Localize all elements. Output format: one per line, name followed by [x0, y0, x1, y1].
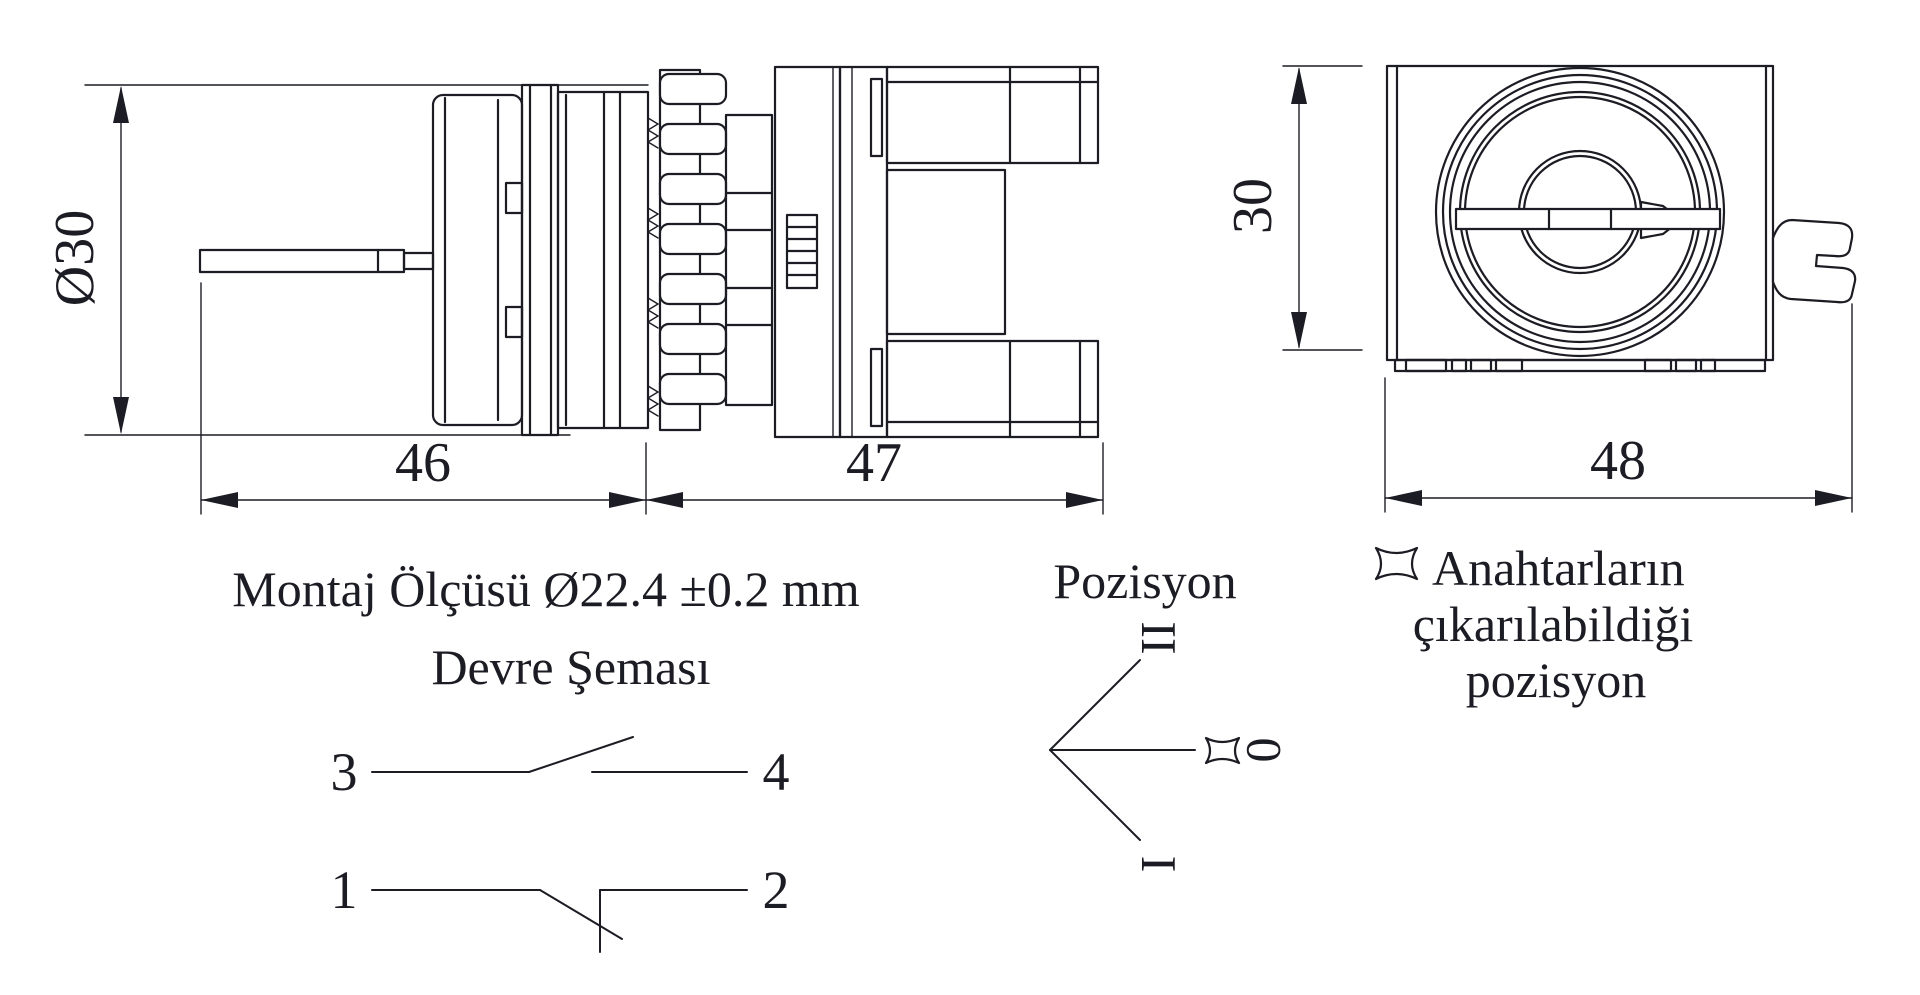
key-note-line3: pozisyon — [1466, 652, 1647, 708]
contact-block — [775, 67, 1098, 437]
arrow-right-icon — [646, 492, 683, 508]
arrow-up-icon — [1291, 67, 1307, 104]
dim-48-label: 48 — [1590, 430, 1646, 492]
key-note-line2: çıkarılabildiği — [1413, 596, 1693, 652]
terminal-3-label: 3 — [331, 742, 358, 802]
key-switch-technical-drawing: Ø30 46 47 — [0, 0, 1920, 995]
terminal-top — [871, 67, 1098, 163]
knurled-mounting-ring — [660, 70, 726, 430]
arrow-left-icon — [1066, 492, 1103, 508]
dim-30-label: 30 — [1222, 178, 1284, 234]
arrow-left-icon — [1385, 490, 1422, 506]
terminal-4-label: 4 — [763, 742, 790, 802]
key-symbol-icon — [1376, 548, 1417, 579]
position-title: Pozisyon — [1053, 553, 1236, 609]
key-cylinder — [1456, 151, 1720, 273]
lock-head-housing — [433, 95, 522, 425]
side-view — [200, 67, 1098, 437]
circuit-title: Devre Şeması — [431, 639, 710, 695]
key-note-line1: Anahtarların — [1432, 540, 1685, 596]
arrow-down-icon — [1291, 312, 1307, 349]
position-0-label: 0 — [1234, 738, 1290, 763]
terminal-2-label: 2 — [763, 860, 790, 920]
key-release-tab — [1773, 220, 1855, 302]
technical-drawing-page: Ø30 46 47 — [0, 0, 1920, 995]
dimension-46: 46 — [201, 283, 646, 514]
key-removal-note: Anahtarların çıkarılabildiği pozisyon — [1376, 540, 1693, 708]
arrow-right-icon — [1815, 490, 1852, 506]
dimension-47: 47 — [646, 432, 1103, 514]
circuit-diagram: Devre Şeması 3 4 1 2 — [331, 639, 790, 952]
bezel-flange — [522, 85, 558, 435]
mounting-feet — [1395, 360, 1765, 371]
mounting-dimension-note: Montaj Ölçüsü Ø22.4 ±0.2 mm — [232, 561, 860, 617]
arrow-right-icon — [609, 492, 646, 508]
arrow-up-icon — [113, 86, 129, 123]
arrow-left-icon — [201, 492, 238, 508]
dim-diameter-label: Ø30 — [44, 210, 106, 306]
position-I-label: I — [1129, 856, 1185, 873]
terminal-bottom — [871, 341, 1098, 437]
key-slot — [1456, 209, 1720, 229]
dimension-height-30: 30 — [1222, 66, 1362, 350]
dim-47-label: 47 — [846, 432, 902, 494]
terminal-1-label: 1 — [331, 860, 358, 920]
dim-46-label: 46 — [395, 432, 451, 494]
adapter-plate — [726, 115, 772, 405]
arrow-down-icon — [113, 397, 129, 434]
front-view — [1387, 66, 1855, 371]
collar-section — [558, 92, 658, 428]
contact-nc-1-2: 1 2 — [331, 860, 790, 952]
contact-no-3-4: 3 4 — [331, 737, 790, 802]
key-blade — [200, 250, 433, 272]
position-diagram: Pozisyon II 0 I — [1050, 553, 1290, 872]
position-II-label: II — [1129, 621, 1185, 654]
